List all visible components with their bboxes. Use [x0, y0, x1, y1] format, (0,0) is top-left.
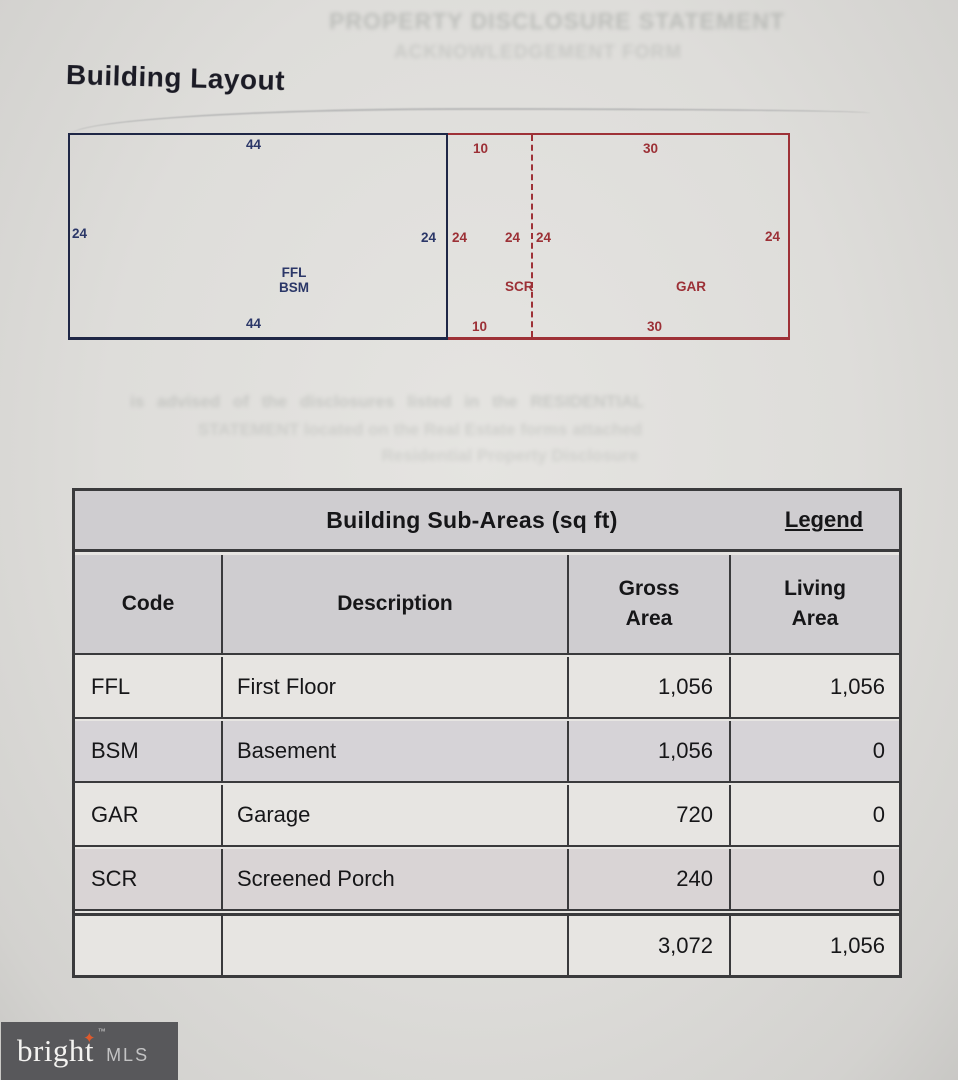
ghost-text-line: STATEMENT located on the Real Estate for… [110, 420, 730, 440]
col-header-living-line2: Area [792, 604, 839, 634]
total-desc-empty [223, 916, 569, 975]
building-layout-diagram: 44 10 30 24 24 24 24 24 24 FFL BSM SCR G… [68, 133, 790, 340]
cell-living-area: 0 [731, 785, 899, 845]
table-total-row: 3,072 1,056 [75, 913, 899, 975]
section-label-ffl-bsm: FFL BSM [264, 265, 324, 295]
col-header-gross-line1: Gross [619, 574, 680, 604]
total-gross-area: 3,072 [569, 916, 731, 975]
dim-main-right: 24 [421, 230, 436, 245]
dim-scr-bottom: 10 [472, 319, 487, 334]
dim-main-top: 44 [246, 137, 261, 152]
table-row: FFL First Floor 1,056 1,056 [75, 657, 899, 719]
cell-gross-area: 1,056 [569, 721, 731, 781]
dim-gar-top: 30 [643, 141, 658, 156]
cell-description: Basement [223, 721, 569, 781]
ghost-text-line: is advised of the disclosures listed in … [130, 392, 870, 412]
table-row: BSM Basement 1,056 0 [75, 721, 899, 783]
dim-main-bottom: 44 [246, 316, 261, 331]
annex-outline [446, 133, 790, 340]
table-title: Building Sub-Areas (sq ft) [75, 507, 749, 534]
page-title: Building Layout [66, 59, 286, 97]
dim-gar-right: 24 [765, 229, 780, 244]
table-row: GAR Garage 720 0 [75, 785, 899, 847]
cell-gross-area: 1,056 [569, 657, 731, 717]
ghost-text-line: Residential Property Disclosure [190, 446, 830, 466]
dim-gar-left: 24 [536, 230, 551, 245]
label-bsm: BSM [264, 280, 324, 295]
cell-living-area: 0 [731, 721, 899, 781]
section-label-gar: GAR [676, 279, 706, 294]
cell-code: FFL [75, 657, 223, 717]
cell-code: BSM [75, 721, 223, 781]
cell-code: SCR [75, 849, 223, 909]
legend-link: Legend [749, 507, 899, 533]
bright-mls-logo: bright ✦ ™ MLS [1, 1022, 178, 1080]
cell-gross-area: 240 [569, 849, 731, 909]
col-header-gross-line2: Area [626, 604, 673, 634]
dim-gar-bottom: 30 [647, 319, 662, 334]
label-ffl: FFL [264, 265, 324, 280]
ghost-text-line: ACKNOWLEDGEMENT FORM [268, 42, 808, 64]
ffl-bsm-outline [68, 133, 448, 340]
cell-description: First Floor [223, 657, 569, 717]
col-header-description: Description [223, 555, 569, 653]
table-header-row: Code Description Gross Area Living Area [75, 555, 899, 655]
table-title-row: Building Sub-Areas (sq ft) Legend [75, 491, 899, 552]
dim-main-left: 24 [72, 226, 87, 241]
col-header-living-area: Living Area [731, 555, 899, 653]
dim-scr-left: 24 [452, 230, 467, 245]
trademark-symbol: ™ [98, 1027, 107, 1036]
sub-areas-table: Building Sub-Areas (sq ft) Legend Code D… [72, 488, 902, 978]
bright-wordmark: bright ✦ ™ [17, 1033, 94, 1069]
cell-description: Garage [223, 785, 569, 845]
mls-text: MLS [106, 1045, 149, 1066]
table-row: SCR Screened Porch 240 0 [75, 849, 899, 911]
sparkle-icon: ✦ [83, 1029, 96, 1047]
cell-living-area: 0 [731, 849, 899, 909]
cell-living-area: 1,056 [731, 657, 899, 717]
cell-description: Screened Porch [223, 849, 569, 909]
section-label-scr: SCR [505, 279, 534, 294]
dim-scr-top: 10 [473, 141, 488, 156]
total-living-area: 1,056 [731, 916, 899, 975]
scr-gar-divider-line [531, 135, 533, 337]
total-code-empty [75, 916, 223, 975]
cell-gross-area: 720 [569, 785, 731, 845]
col-header-gross-area: Gross Area [569, 555, 731, 653]
col-header-code: Code [75, 555, 223, 653]
cell-code: GAR [75, 785, 223, 845]
dim-scr-right: 24 [505, 230, 520, 245]
col-header-living-line1: Living [784, 574, 846, 604]
ghost-text-line: PROPERTY DISCLOSURE STATEMENT [232, 8, 882, 35]
